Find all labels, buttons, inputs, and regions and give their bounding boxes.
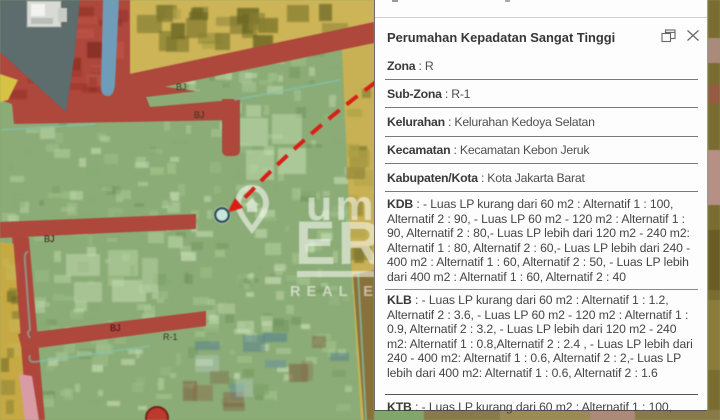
svg-text:BJ: BJ xyxy=(194,110,205,120)
svg-text:BJ: BJ xyxy=(110,323,121,333)
svg-text:BJ: BJ xyxy=(44,234,55,244)
svg-text:BJ: BJ xyxy=(176,82,187,92)
svg-text:ER: ER xyxy=(295,209,384,277)
svg-text:R-1: R-1 xyxy=(163,332,178,342)
